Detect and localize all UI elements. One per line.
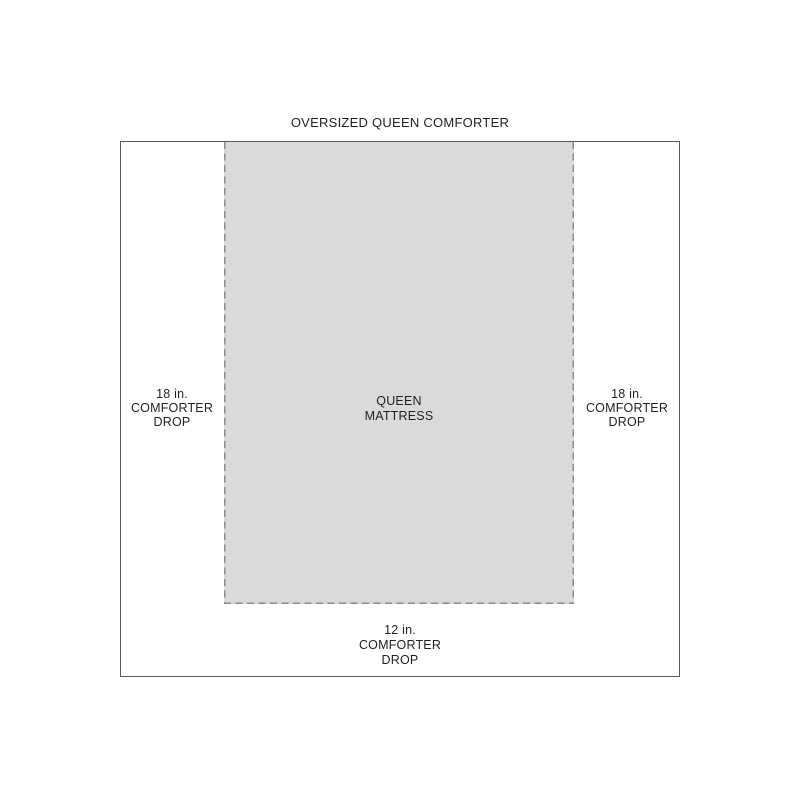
bottom-drop-amount: 12 in. bbox=[120, 623, 680, 638]
mattress-label: QUEEN MATTRESS bbox=[224, 394, 574, 423]
left-drop-label-line3: DROP bbox=[120, 415, 224, 429]
bottom-drop-label-line2: COMFORTER bbox=[120, 638, 680, 653]
left-drop-label: 18 in. COMFORTER DROP bbox=[120, 387, 224, 429]
mattress-label-line2: MATTRESS bbox=[224, 409, 574, 424]
right-drop-label-line2: COMFORTER bbox=[574, 401, 680, 415]
right-drop-label-line3: DROP bbox=[574, 415, 680, 429]
diagram-title: OVERSIZED QUEEN COMFORTER bbox=[120, 115, 680, 131]
bottom-drop-label-line3: DROP bbox=[120, 653, 680, 668]
bottom-drop-label: 12 in. COMFORTER DROP bbox=[120, 623, 680, 668]
left-drop-amount: 18 in. bbox=[120, 387, 224, 401]
right-drop-label: 18 in. COMFORTER DROP bbox=[574, 387, 680, 429]
left-drop-label-line2: COMFORTER bbox=[120, 401, 224, 415]
comforter-dimension-diagram: OVERSIZED QUEEN COMFORTER 18 in. COMFORT… bbox=[0, 0, 800, 800]
mattress-label-line1: QUEEN bbox=[224, 394, 574, 409]
mattress-area bbox=[224, 142, 574, 604]
right-drop-amount: 18 in. bbox=[574, 387, 680, 401]
